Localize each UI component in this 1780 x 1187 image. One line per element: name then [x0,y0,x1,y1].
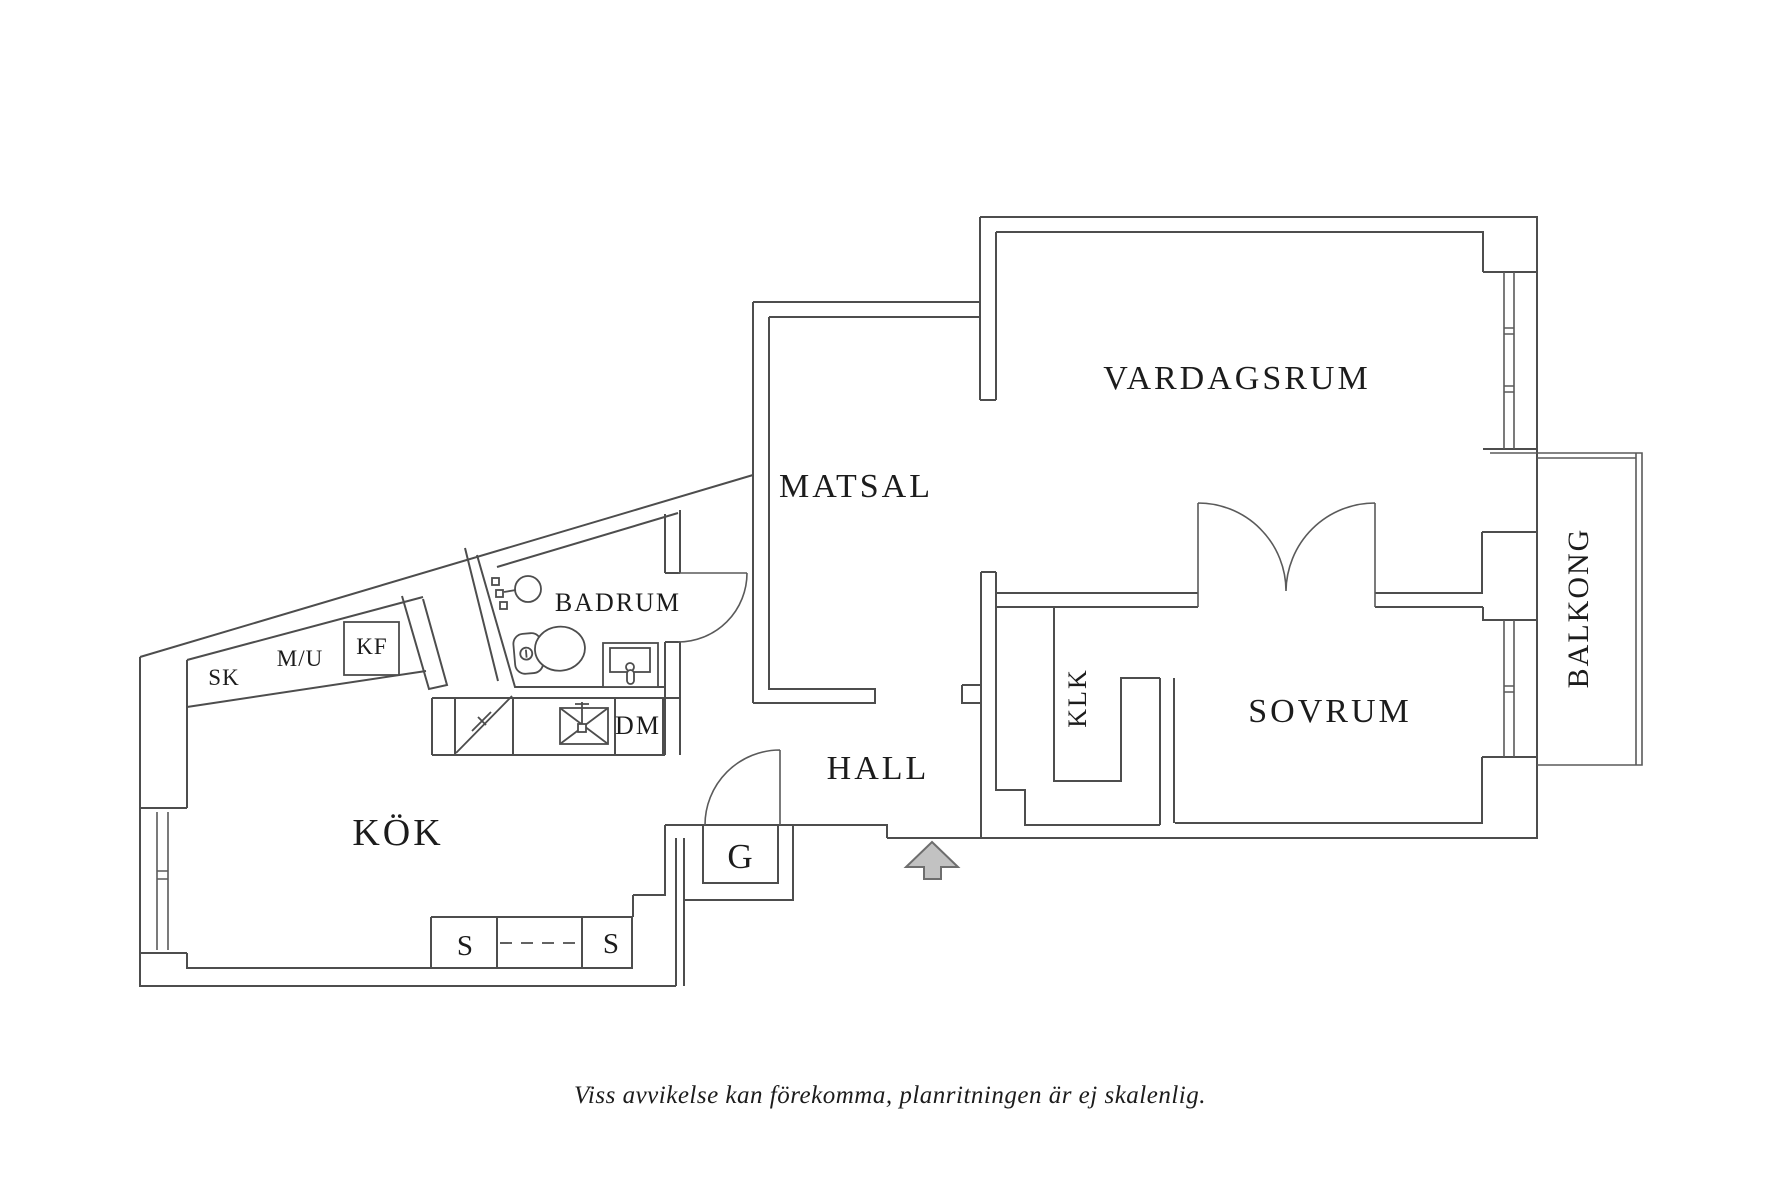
room-label-sovrum: SOVRUM [1248,693,1411,730]
entrance-arrow-icon [906,842,958,879]
wardrobe-label-s-right: S [603,928,619,960]
sovrum-walls [1175,532,1537,823]
floor-plan-page: VARDAGSRUM MATSAL BADRUM KÖK HALL SOVRUM… [0,0,1780,1187]
washbasin-icon [492,576,541,609]
kitchen-sink-icon [560,702,608,744]
kitchen-exterior-walls [140,475,753,986]
closet-door-icon [705,750,780,825]
counter-hatch-icon [456,696,512,753]
kitchen-east-g-walls [633,825,793,986]
walls [140,217,1537,986]
doors [678,503,1375,825]
bedroom-window-icon [1482,620,1537,757]
cabinet-label-sk: SK [208,665,239,690]
cabinet-label-dm: DM [615,711,661,740]
room-label-klk: KLK [1063,668,1092,727]
room-label-vardagsrum: VARDAGSRUM [1103,360,1370,397]
room-label-badrum: BADRUM [555,588,681,617]
living-room-window-icon [1483,272,1537,449]
cabinet-label-mu: M/U [277,646,323,671]
kitchen-fixtures [344,622,632,968]
exterior-wall-top-right [665,217,1537,838]
bathroom-door-icon [678,573,747,642]
room-label-balkong: BALKONG [1562,528,1595,689]
room-label-matsal: MATSAL [779,468,933,505]
toilet-icon [512,625,587,675]
floor-plan-canvas: VARDAGSRUM MATSAL BADRUM KÖK HALL SOVRUM… [0,0,1780,1187]
bathroom-sink-icon [603,643,658,687]
hall-klk-walls [962,572,1160,838]
cabinet-label-kf: KF [356,634,387,659]
room-labels: VARDAGSRUM MATSAL BADRUM KÖK HALL SOVRUM… [208,360,1595,962]
room-label-kok: KÖK [352,812,443,854]
closet-label-g: G [727,837,752,876]
wardrobe-label-s-left: S [457,930,473,962]
kitchen-window-icon [140,808,187,953]
double-door-icon [1198,503,1375,607]
room-label-hall: HALL [827,750,930,787]
matsal-walls [753,217,996,703]
klk-interior-walls [996,593,1198,825]
disclaimer-caption: Viss avvikelse kan förekomma, planritnin… [574,1082,1206,1109]
